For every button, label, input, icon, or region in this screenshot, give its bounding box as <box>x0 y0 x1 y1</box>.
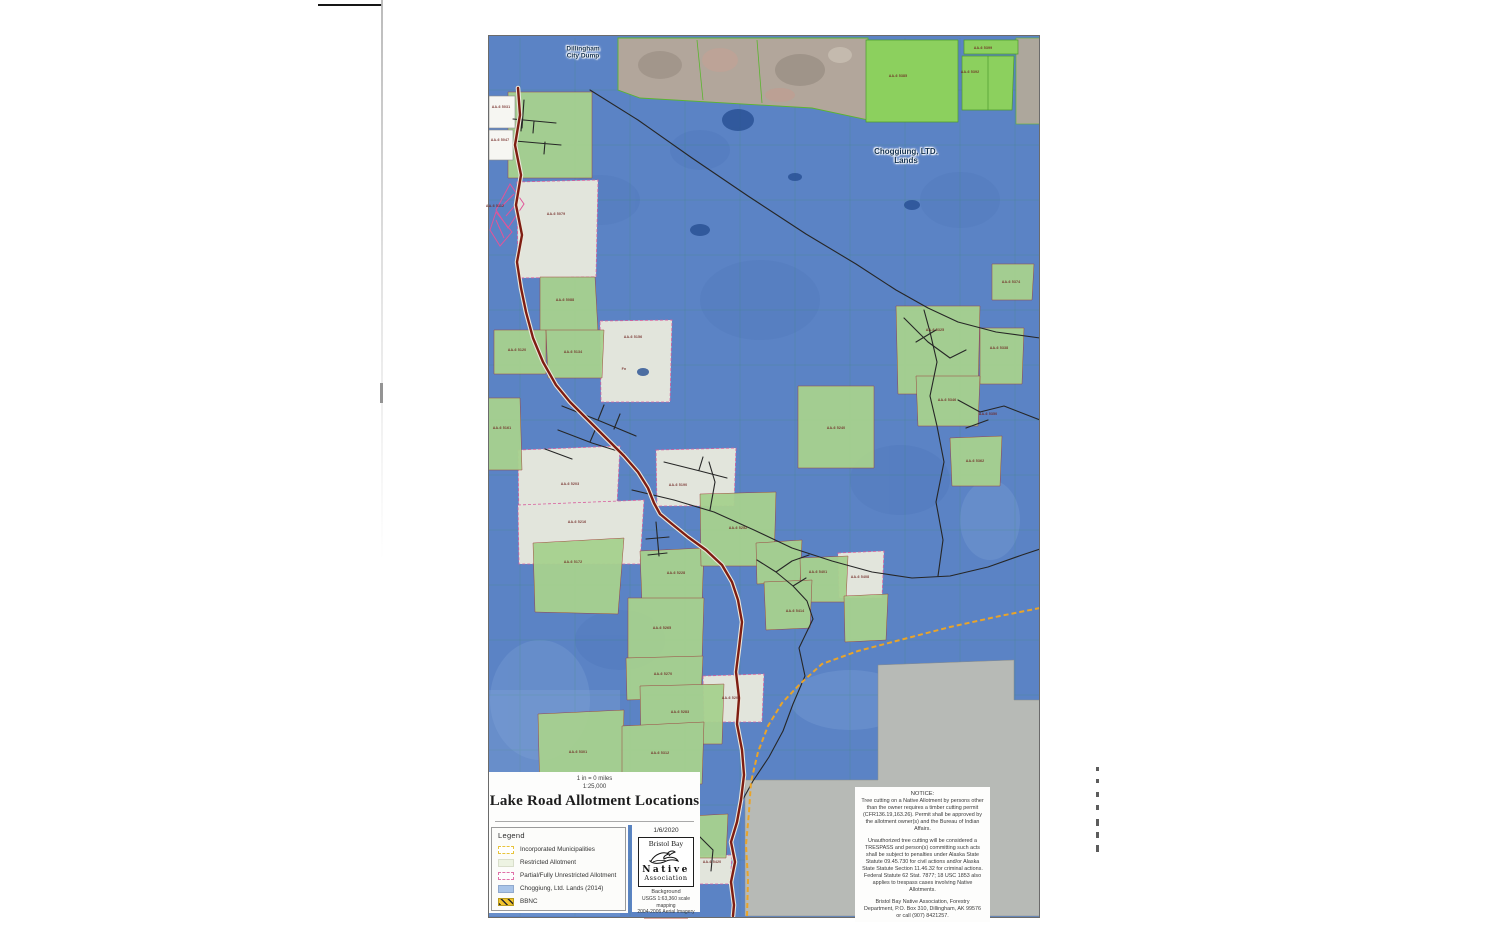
notice-paragraph: Unauthorized tree cutting will be consid… <box>861 838 984 894</box>
map-date: 1/6/2020 <box>632 825 700 834</box>
parcel-label: AA-6 5399 <box>974 46 993 50</box>
notice-paragraphs: Tree cutting on a Native Allotment by pe… <box>861 798 984 920</box>
scan-tick <box>1096 832 1099 838</box>
legend-title: Legend <box>498 831 619 840</box>
scale-bar <box>495 821 694 822</box>
parcel-label: AA-6 5350 <box>979 412 998 416</box>
parcel-label: AA-6 5312 <box>651 751 670 755</box>
scanned-map-page: { "title_block": { "scale_text": "1 in =… <box>0 0 1500 945</box>
bbnc-swatch <box>498 898 514 906</box>
logo-association-text: Association <box>639 875 693 883</box>
scan-tick <box>1096 792 1099 797</box>
parcel-label: AA-6 5203 <box>561 482 580 486</box>
parcel-label: AA-6 5338 <box>990 346 1009 350</box>
loon-bird-icon <box>643 848 689 866</box>
parcel-label: Fn <box>622 367 627 371</box>
parcel-label: AA-6 5228 <box>667 571 686 575</box>
scan-tick <box>1096 819 1099 826</box>
notice-paragraph: Tree cutting on a Native Allotment by pe… <box>861 798 984 833</box>
parcel-label: AA-6 5374 <box>1002 280 1021 284</box>
legend-item: Restricted Allotment <box>498 856 619 869</box>
parcel-label: AA-6 5346 <box>938 398 957 402</box>
credit-line: USGS 1:63,360 scale mapping <box>632 896 700 909</box>
parcel-label: AA-6 5290 <box>722 696 741 700</box>
bbna-logo: Bristol Bay Native Association <box>638 837 694 887</box>
parcel-label: AA-6 5283 <box>671 710 690 714</box>
title-block: 1 in = 0 miles 1:25,000 Lake Road Allotm… <box>489 772 700 825</box>
parcel-label: AA-6 5325 <box>926 328 945 332</box>
parcel-label: AA-6 5420 <box>703 860 722 864</box>
legend: Legend Incorporated MunicipalitiesRestri… <box>489 825 628 913</box>
parcel-label: AA-6 5161 <box>493 426 512 430</box>
parcel-label: AA-6 5265 <box>653 626 672 630</box>
parcel-label: AA-6 5172 <box>564 560 583 564</box>
background-credits: BackgroundUSGS 1:63,360 scale mapping200… <box>632 889 700 916</box>
scan-tick <box>1096 767 1099 771</box>
parcel-label: AA-6 5120 <box>508 348 527 352</box>
choggiung-swatch <box>498 885 514 893</box>
parcel-label: AA-6 5088 <box>556 298 575 302</box>
credit-line: 2004-2006 Aerial Imagery <box>632 909 700 916</box>
parcel-label: AA-6 5270 <box>654 672 673 676</box>
dillingham-city-dump-label: Dillingham City Dump <box>566 46 599 61</box>
logo-bristol-bay-text: Bristol Bay <box>639 838 693 848</box>
legend-item: Incorporated Municipalities <box>498 843 619 856</box>
parcel-label: AA-6 5392 <box>961 70 980 74</box>
legend-item: Choggiung, Ltd. Lands (2014) <box>498 882 619 895</box>
scan-tick <box>1096 845 1099 852</box>
parcel-label: AA-6 5031 <box>492 105 511 109</box>
restricted-swatch <box>498 859 514 867</box>
scan-tick <box>1096 805 1099 810</box>
parcel-label: AA-6 5156 <box>624 335 643 339</box>
parcel-label: AA-6 5240 <box>827 426 846 430</box>
parcel-label: AA-6 5134 <box>564 350 583 354</box>
unrestricted-swatch <box>498 872 514 880</box>
parcel-label: AA-6 5385 <box>889 74 908 78</box>
bright-green-parcels <box>866 40 1018 122</box>
parcel-label: AA-6 5408 <box>851 575 870 579</box>
legend-item-label: Partial/Fully Unrestricted Allotment <box>520 872 616 879</box>
choggiung-lands-label: Choggiung, LTD. Lands <box>874 147 938 165</box>
parcel-label: AA-6 5401 <box>809 570 828 574</box>
parcel-label: AA-6 5079 <box>547 212 566 216</box>
legend-item: BBNC <box>498 895 619 908</box>
page-edge-line <box>381 0 383 560</box>
legend-item-label: Choggiung, Ltd. Lands (2014) <box>520 885 603 892</box>
page-edge-dash <box>380 383 383 403</box>
parcel-label: AA-6 5216 <box>568 520 587 524</box>
scan-fold-line <box>318 4 382 6</box>
credit-line: Background <box>632 889 700 896</box>
logo-column: 1/6/2020 Bristol Bay Native Association … <box>632 825 700 912</box>
scan-tick <box>1096 779 1099 783</box>
notice-title: NOTICE: <box>861 791 984 797</box>
parcel-label: AA-6 5112 <box>486 204 504 208</box>
parcel-label: AA-6 5190 <box>669 483 688 487</box>
parcel-label: AA-6 5301 <box>569 750 588 754</box>
legend-item-label: BBNC <box>520 898 538 905</box>
legend-item-label: Incorporated Municipalities <box>520 846 595 853</box>
notice-paragraph: Bristol Bay Native Association, Forestry… <box>861 899 984 920</box>
legend-item: Partial/Fully Unrestricted Allotment <box>498 869 619 882</box>
legend-items: Incorporated MunicipalitiesRestricted Al… <box>498 843 619 908</box>
parcel-label: AA-6 5362 <box>966 459 985 463</box>
municipal-swatch <box>498 846 514 854</box>
legend-item-label: Restricted Allotment <box>520 859 576 866</box>
map-title: Lake Road Allotment Locations <box>489 793 700 810</box>
parcel-label: AA-6 5047 <box>491 138 510 142</box>
parcel-label: AA-6 5414 <box>786 609 805 613</box>
legend-frame: Legend Incorporated MunicipalitiesRestri… <box>491 827 626 911</box>
scale-text: 1 in = 0 miles <box>489 772 700 783</box>
file-path-note <box>644 918 688 919</box>
notice-box: NOTICE: Tree cutting on a Native Allotme… <box>855 787 990 922</box>
parcel-label: AA-6 5252 <box>729 526 748 530</box>
scale-ratio: 1:25,000 <box>489 783 700 791</box>
